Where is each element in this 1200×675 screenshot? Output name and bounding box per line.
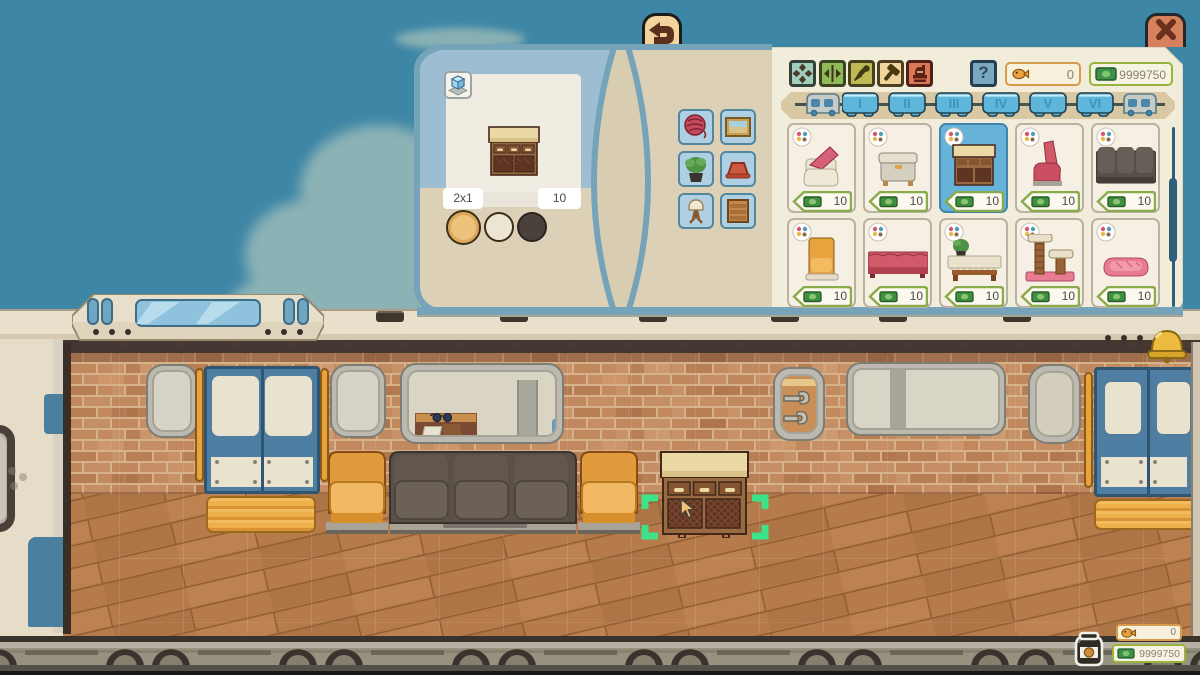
svg-text:IV: IV — [995, 96, 1008, 111]
svg-text:V: V — [1044, 96, 1053, 111]
svg-text:III: III — [949, 96, 960, 111]
svg-text:VI: VI — [1089, 96, 1101, 111]
svg-text:II: II — [903, 96, 910, 111]
svg-text:I: I — [858, 96, 862, 111]
